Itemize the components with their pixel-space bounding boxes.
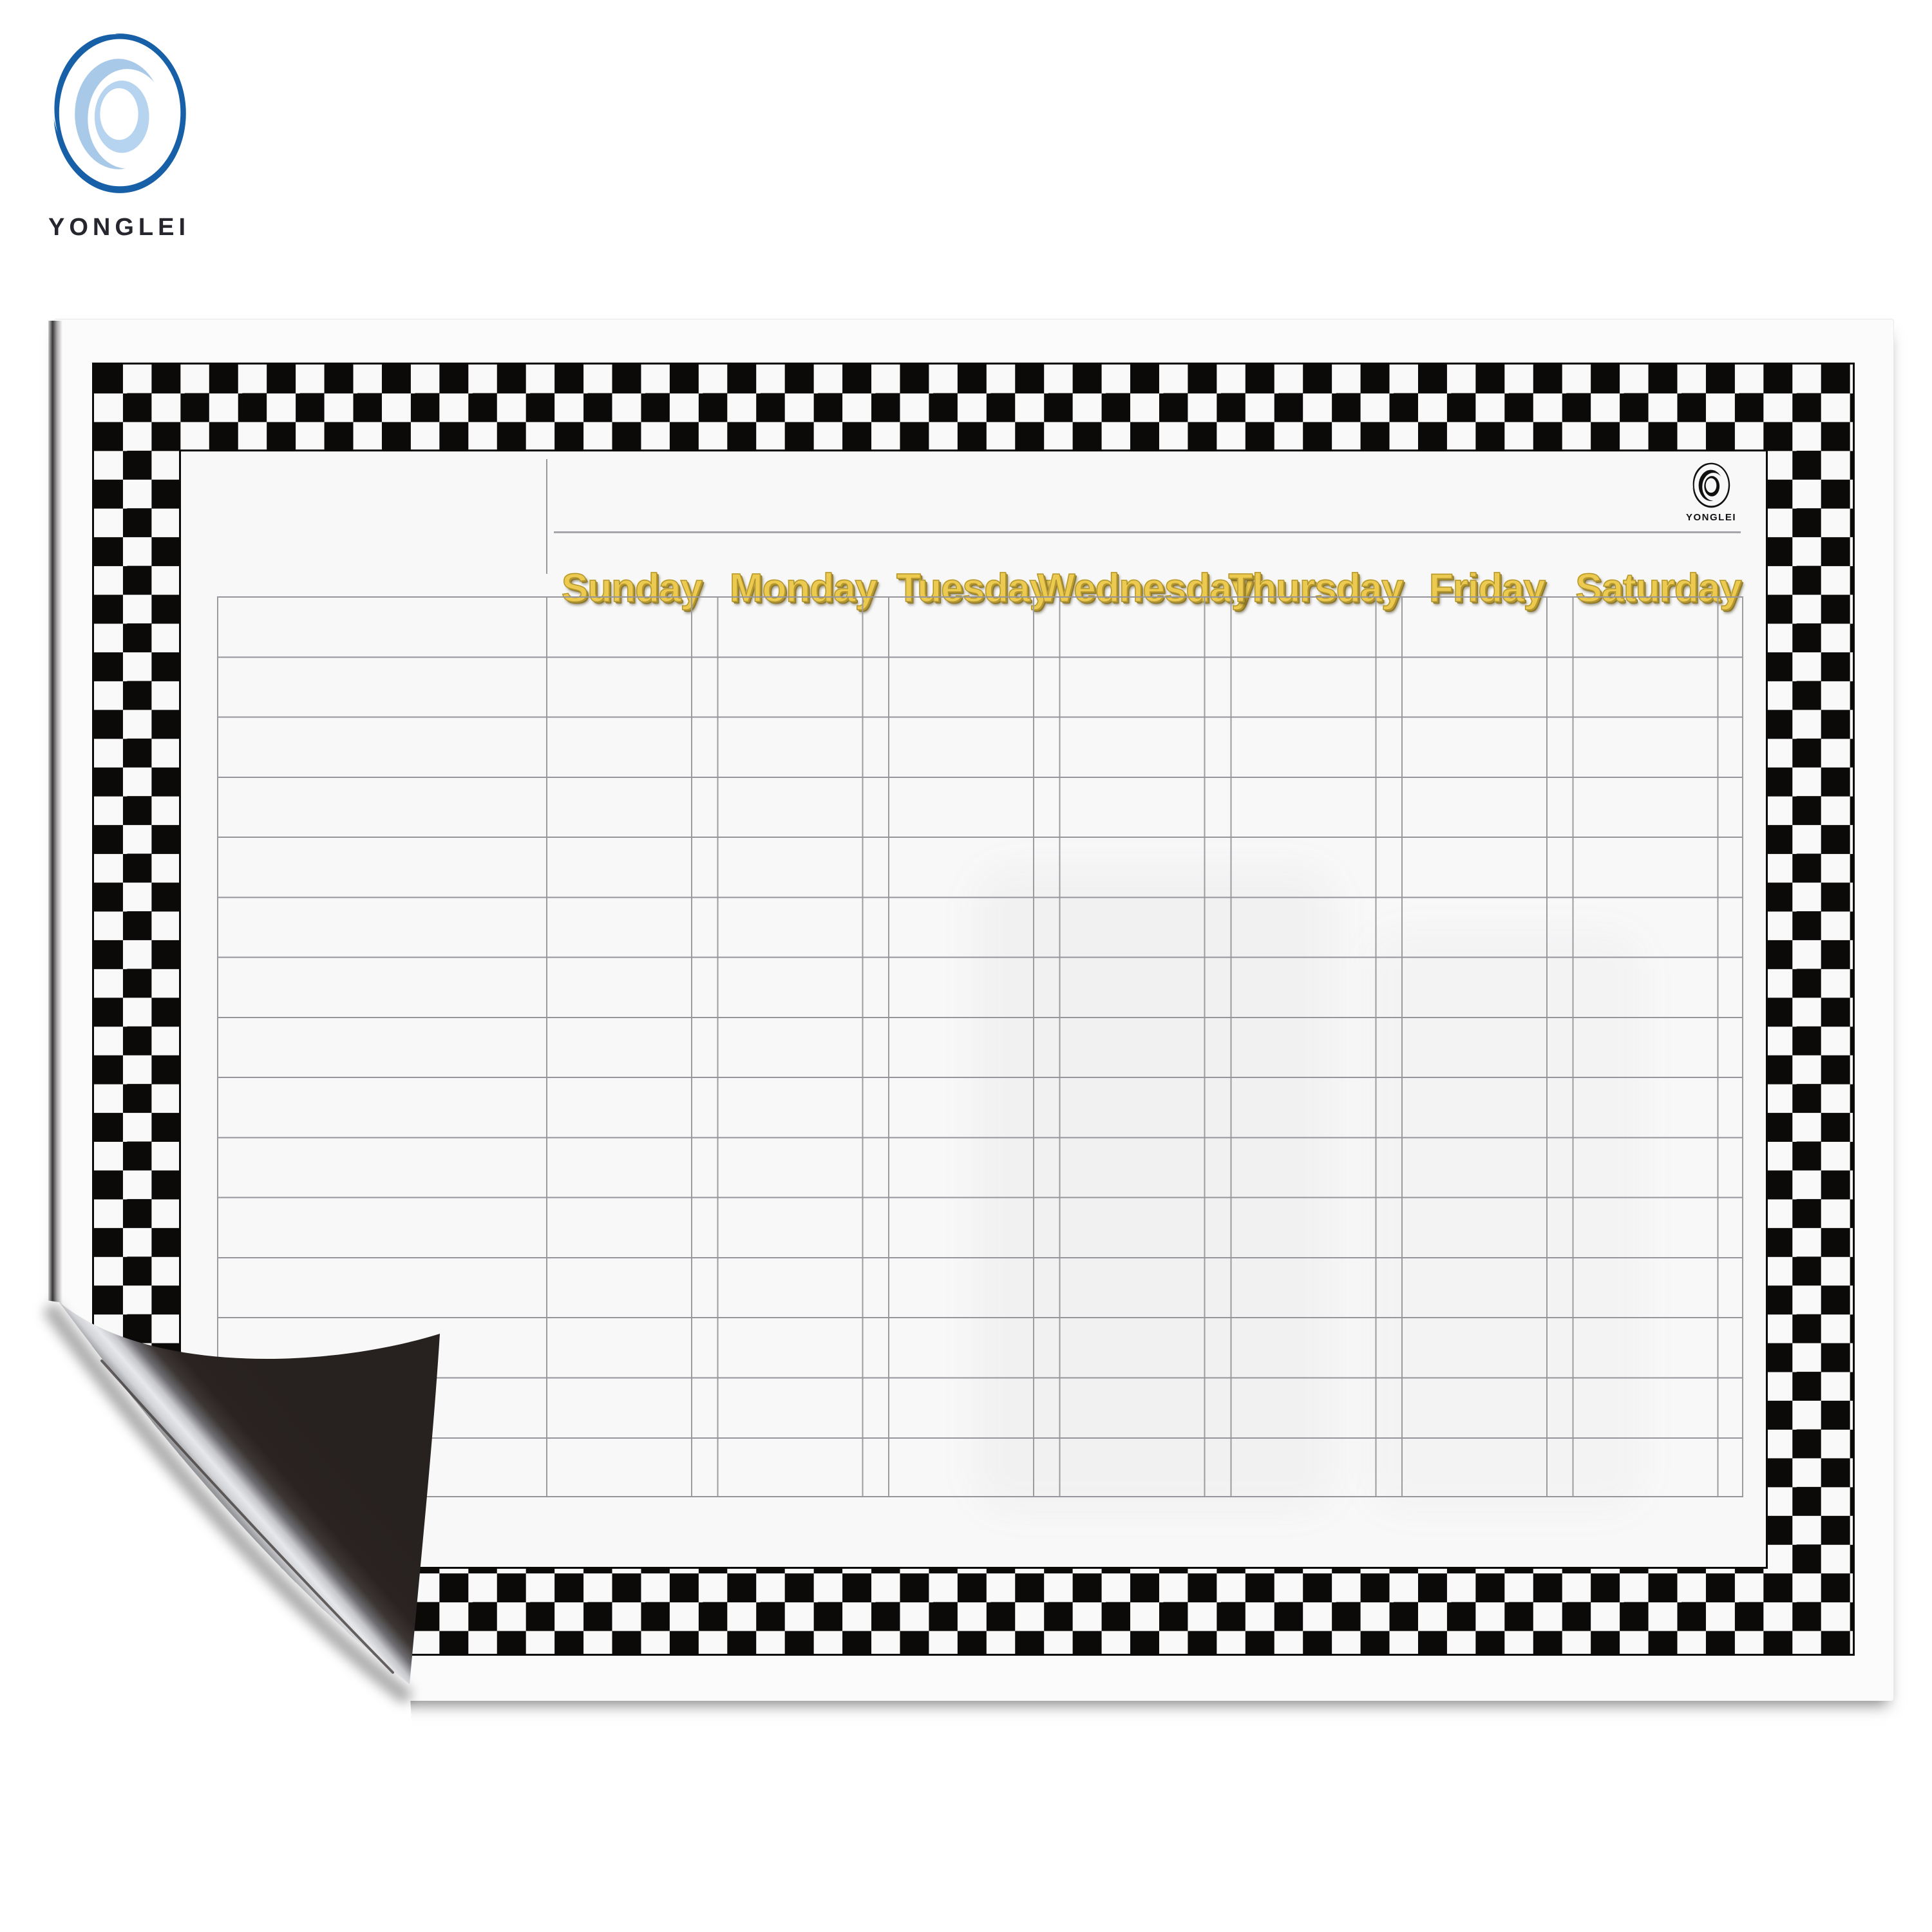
- page-curl: [19, 1272, 496, 1787]
- brand-logo: YONGLEI: [26, 19, 213, 238]
- brand-swirl-icon: [50, 32, 189, 194]
- brand-wordmark: YONGLEI: [26, 214, 213, 241]
- board-left-edge-shadow: [48, 321, 62, 1305]
- board-logo-wordmark: YONGLEI: [1660, 512, 1763, 523]
- header-divider-line: [546, 459, 547, 574]
- product-photo: YONGLEI YONGLEI Sunday Monda: [0, 0, 1932, 1932]
- header-rule: [554, 531, 1741, 533]
- board-logo: YONGLEI: [1660, 462, 1763, 523]
- board-swirl-icon: [1692, 462, 1730, 508]
